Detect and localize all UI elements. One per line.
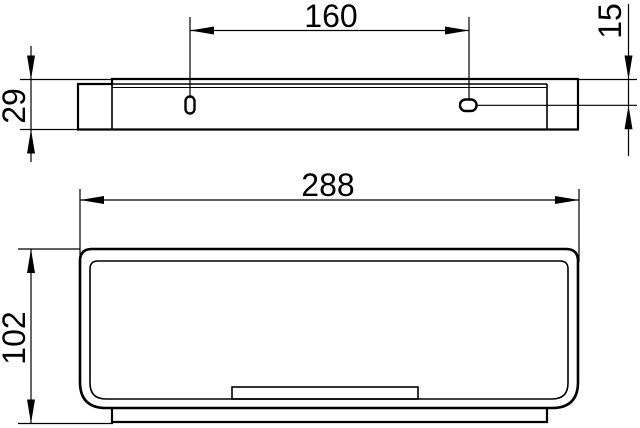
dim-15-arrow-bottom xyxy=(625,105,633,129)
dim-29-arrow-top xyxy=(27,56,35,80)
dim-102-label: 102 xyxy=(0,311,32,364)
dim-102-arrow-bottom xyxy=(27,400,35,424)
wall-rail-step xyxy=(112,408,547,422)
technical-drawing: 160 15 29 288 xyxy=(0,0,640,428)
dim-160-arrow-right xyxy=(445,27,469,35)
dim-102-arrow-top xyxy=(27,249,35,273)
shelf-rail-outline xyxy=(78,79,578,130)
side-view xyxy=(78,79,578,130)
mounting-slot-left xyxy=(186,97,195,114)
dim-288-arrow-left xyxy=(80,196,104,204)
drawing-canvas: 160 15 29 288 xyxy=(0,0,640,428)
basket-outer-outline xyxy=(80,249,578,408)
mounting-slot-right xyxy=(460,100,477,112)
dim-160-arrow-left xyxy=(190,27,214,35)
dim-15-arrow-top xyxy=(625,56,633,80)
dim-288-label: 288 xyxy=(301,167,354,203)
dim-29-label: 29 xyxy=(0,88,32,124)
dim-160-label: 160 xyxy=(304,0,357,34)
dim-29-arrow-bottom xyxy=(27,130,35,154)
top-view xyxy=(80,249,578,422)
dim-288-arrow-right xyxy=(555,196,579,204)
dim-rail-height: 29 xyxy=(0,46,113,162)
drain-tab xyxy=(232,387,418,399)
basket-inner-outline xyxy=(90,261,568,399)
dim-15-label: 15 xyxy=(592,3,628,39)
